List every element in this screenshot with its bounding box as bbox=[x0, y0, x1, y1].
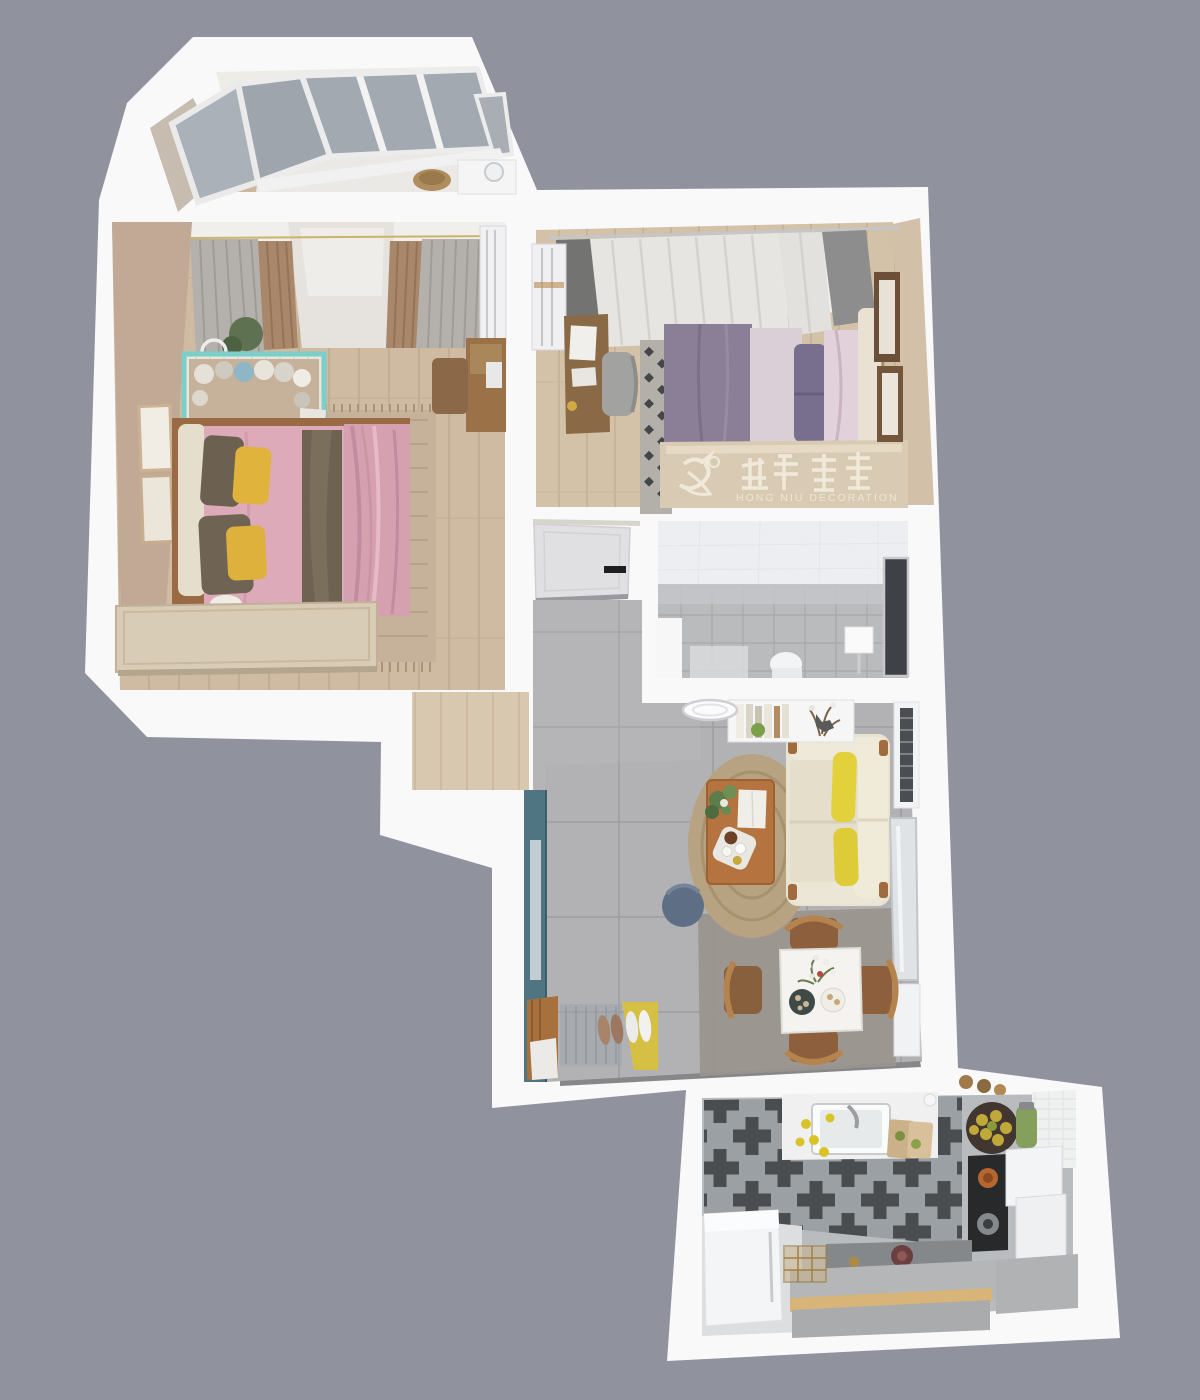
svg-text:HONG NIU DECORATION: HONG NIU DECORATION bbox=[736, 492, 899, 504]
